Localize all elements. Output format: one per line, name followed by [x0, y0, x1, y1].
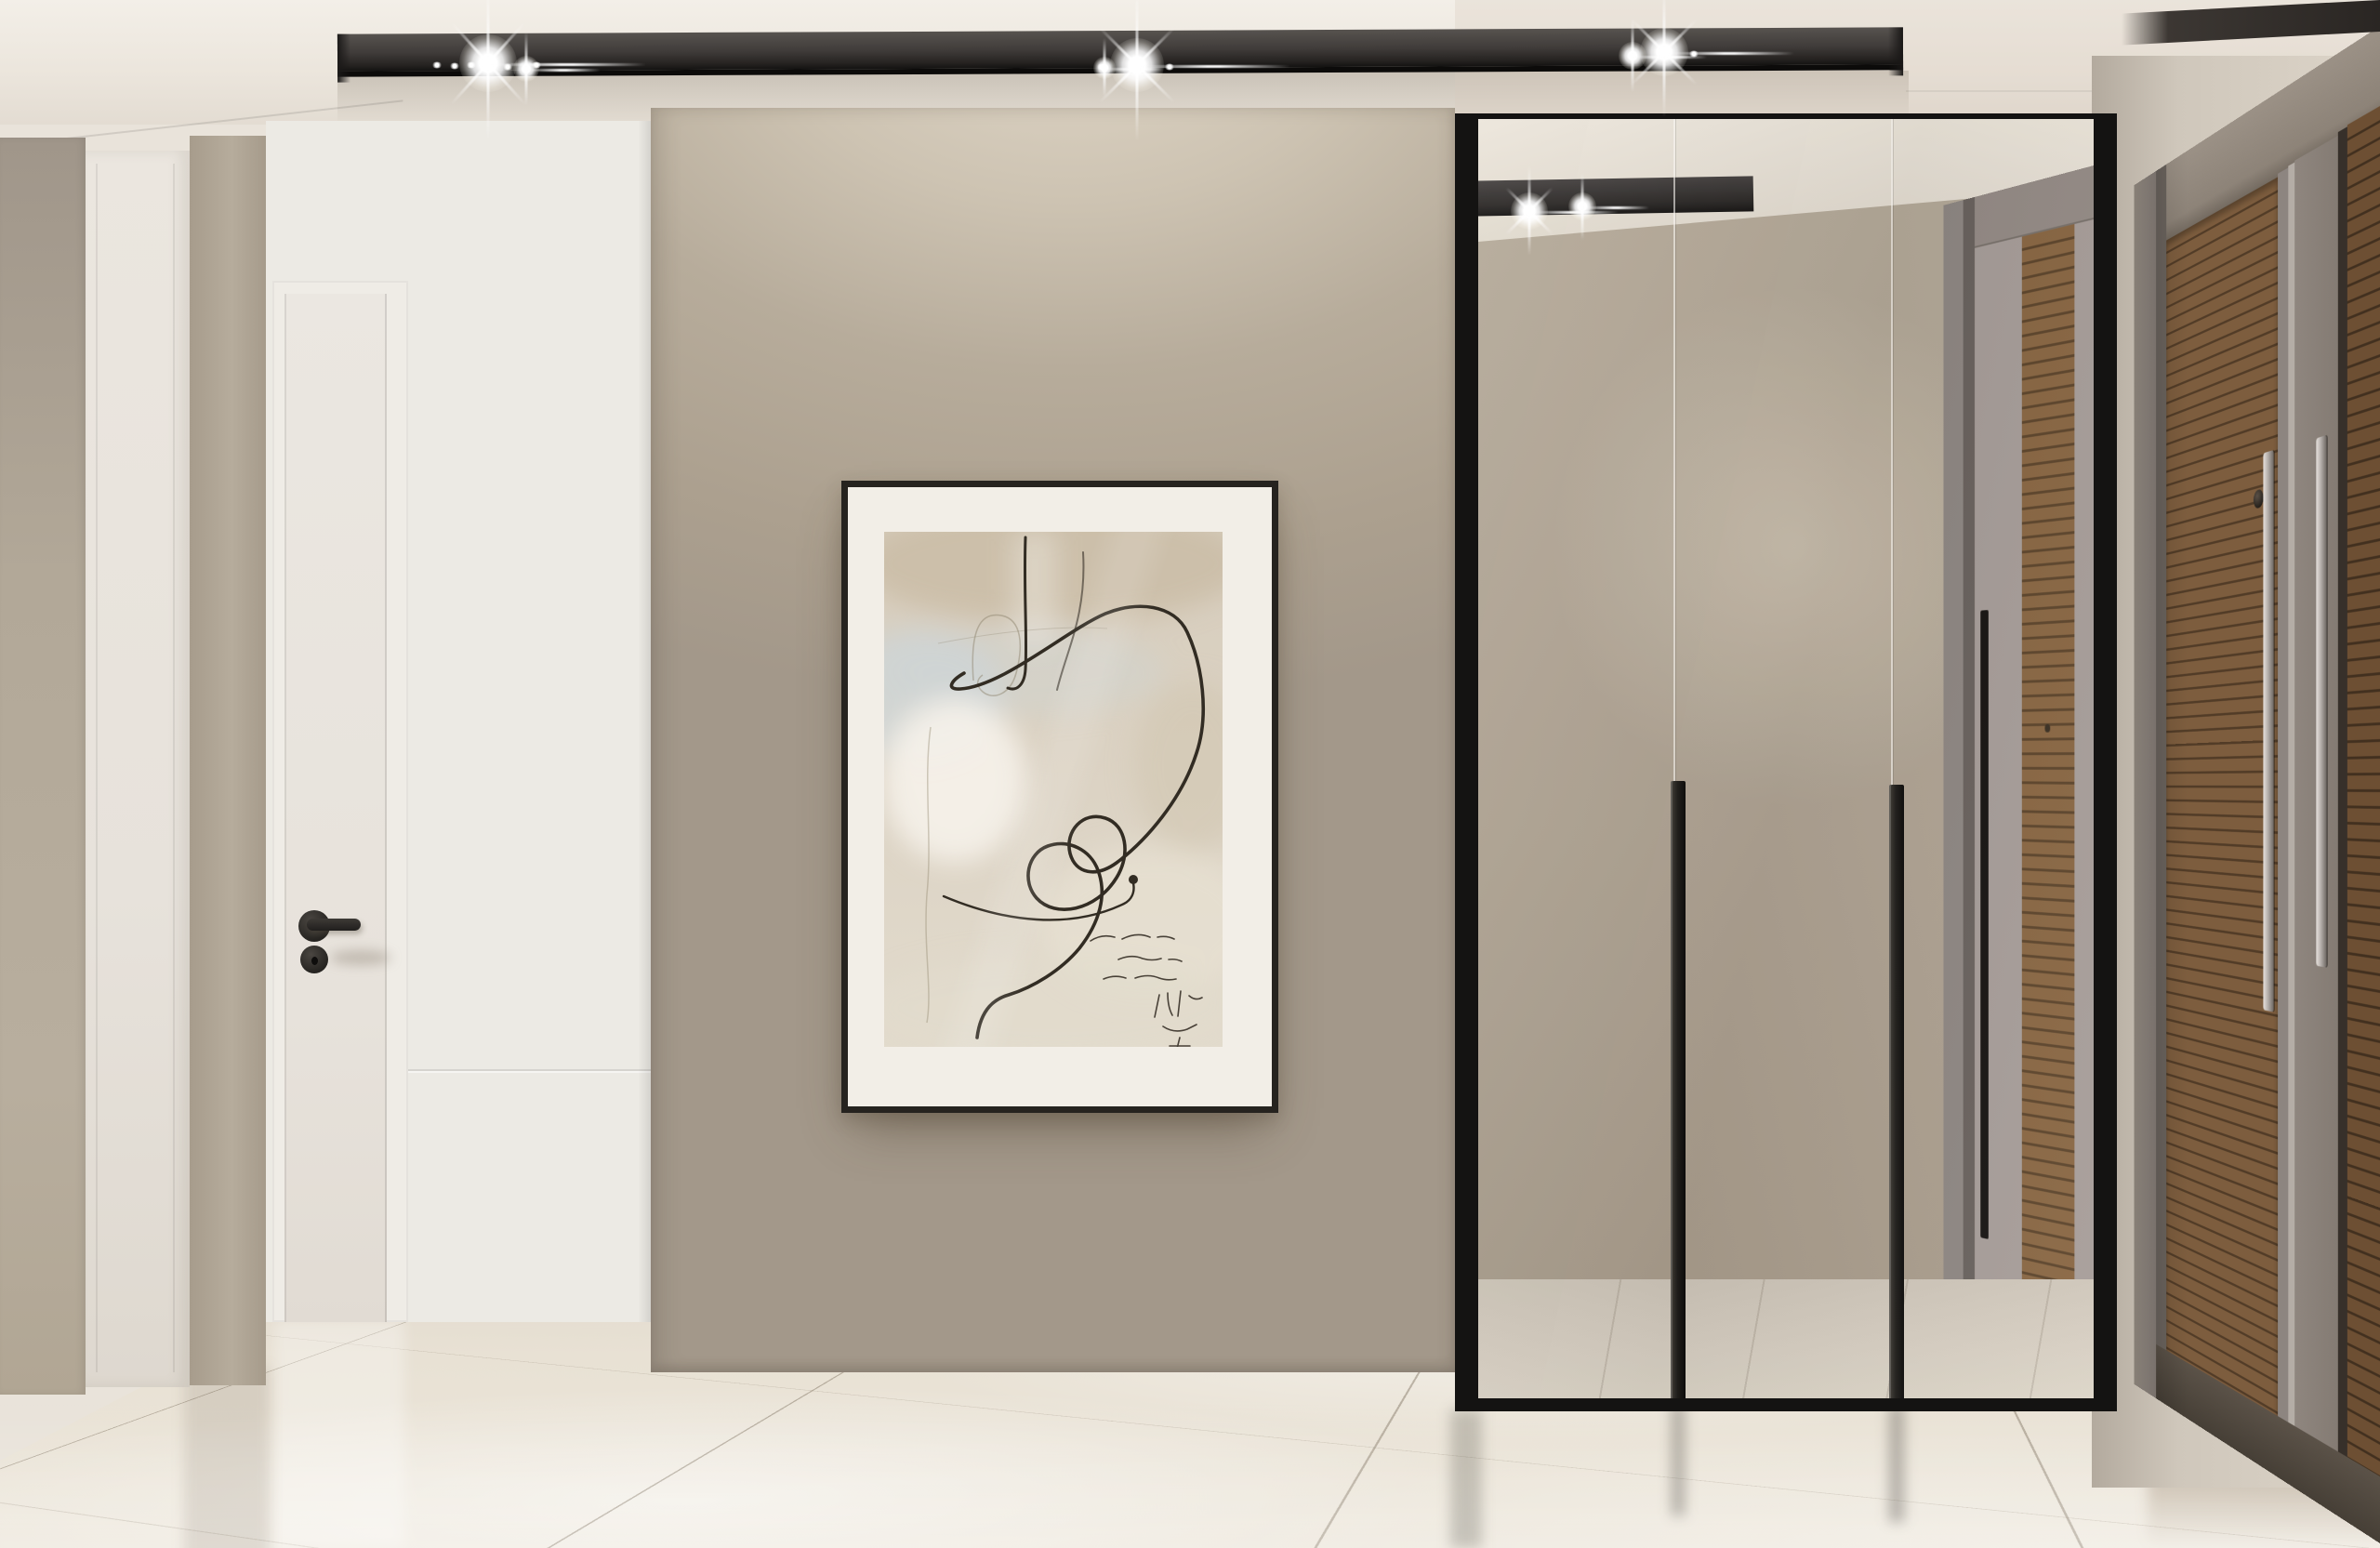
spot-glint	[1165, 64, 1175, 71]
panel-groove	[96, 164, 98, 1372]
mirror-glass-tint	[1478, 119, 2094, 1398]
left-white-panel	[86, 151, 190, 1387]
escutcheon-shadow	[330, 950, 391, 965]
spot-glint	[1689, 51, 1699, 58]
entrance-door-handle-bar-1	[2264, 450, 2274, 1012]
left-side-wall	[0, 138, 86, 1395]
mirror-wardrobe	[1455, 113, 2117, 1411]
floor-reflection-door	[274, 1320, 404, 1548]
panel-groove	[173, 164, 175, 1372]
door-lever-handle	[307, 919, 361, 931]
track-endcap	[1888, 27, 1903, 75]
entrance-door-ambient-shadow	[2135, 26, 2380, 1543]
wall-horizontal-groove	[407, 1069, 651, 1071]
framed-artwork	[841, 481, 1278, 1113]
spot-glint	[1097, 64, 1107, 71]
wall-corner-shadow	[638, 121, 651, 1322]
entrance-door-handle-bar-2	[2317, 435, 2327, 968]
spot-glint	[450, 63, 460, 70]
glass-glare	[884, 532, 1223, 1047]
interior-door-leaf	[284, 294, 387, 1322]
mirror-glass	[1478, 119, 2094, 1398]
spot-glint	[432, 62, 443, 69]
spot-glint	[503, 64, 513, 71]
spot-glint	[467, 62, 477, 69]
floor-reflection-handle-a	[1672, 1404, 1685, 1515]
beige-pillar	[190, 136, 266, 1385]
ceiling-track-light	[337, 27, 1903, 76]
floor-reflection-mirror-frame	[1450, 1409, 1482, 1548]
abstract-line-art	[884, 532, 1223, 1047]
track-endcap	[337, 34, 350, 83]
interior-render	[0, 0, 2380, 1548]
spot-glint	[532, 62, 542, 69]
entrance-door	[2135, 26, 2380, 1543]
interior-door	[272, 281, 408, 1322]
keyhole	[311, 957, 318, 965]
floor-reflection-pillar	[184, 1367, 270, 1548]
floor-reflection-handle-b	[1889, 1406, 1904, 1522]
